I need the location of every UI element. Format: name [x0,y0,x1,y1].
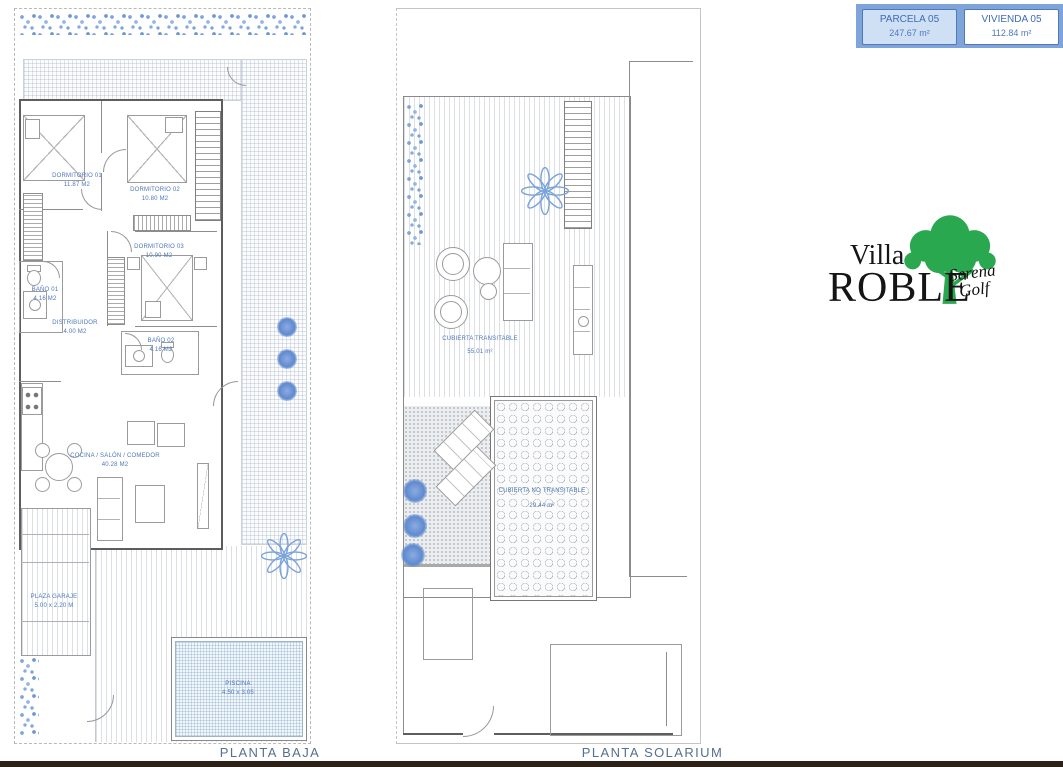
round-chair-inner [440,301,462,323]
wardrobe [133,215,191,231]
sofa-cushion [504,293,530,294]
wall [135,326,217,327]
wall [629,61,630,576]
room-label-dormitorio-03: DORMITORIO 0310.90 M2 [109,243,209,261]
header-parcela-box: PARCELA 05 247.67 m² [862,9,957,45]
room-label-bano-02: BAÑO 024.16 M2 [131,337,191,355]
chair [67,477,82,492]
hedge-row-icon [19,13,307,35]
room-label-dormitorio-02: DORMITORIO 0210.80 M2 [105,186,205,204]
garage [21,508,91,656]
terrace-grid-right [241,59,307,545]
bush-icon [277,349,297,369]
chair [35,443,50,458]
wall [403,733,463,735]
sofa-cushion [98,498,120,499]
bush-icon [277,381,297,401]
round-chair-inner [442,253,464,275]
wall [403,596,404,734]
vivienda-label: VIVIENDA 05 [965,14,1058,25]
tv-unit [197,463,209,529]
room-label-garaje: PLAZA GARAJE5.00 x 2.20 M [19,593,89,611]
wardrobe [107,257,125,325]
armchair [127,421,155,445]
room-label-salon: COCINA / SALÓN / COMEDOR40.28 M2 [55,452,175,470]
bush-icon [403,479,427,503]
pillow [25,119,40,139]
parcela-label: PARCELA 05 [863,14,956,25]
bush-icon [277,317,297,337]
plan-planta-baja: DORMITORIO 0111.87 M2 DORMITORIO 0210.80… [14,8,311,744]
bush-icon [401,543,425,567]
stove [22,387,42,415]
room-label-distribuidor: DISTRIBUIDOR4.00 M2 [25,319,125,337]
wall [135,231,217,232]
palm-tree-icon [521,167,569,215]
room-label-bano-01: BAÑO 014.16 M2 [15,286,75,304]
garage-line [21,534,89,535]
room-label-cubierta-transitable: CUBIERTA TRANSITABLE 55.01 m² [420,335,540,357]
wall [629,576,687,577]
plan-planta-solarium: CUBIERTA TRANSITABLE 55.01 m² CUBIERTA N… [396,8,701,744]
cabinet-line [574,309,590,310]
cabinet-line [574,331,590,332]
sofa [503,243,533,321]
cabinet-line [574,287,590,288]
toilet [27,270,41,286]
coffee-table [135,485,165,523]
caption-planta-solarium: PLANTA SOLARIUM [560,745,745,760]
wall [19,381,61,382]
outdoor-kitchen [573,265,593,355]
sofa-cushion [504,268,530,269]
door-arc [463,706,494,737]
terrace-grid-top [23,59,247,101]
header-vivienda-box: VIVIENDA 05 112.84 m² [964,9,1059,45]
wall [666,652,667,726]
lower-room [423,588,473,660]
sofa [97,477,123,541]
villa-roble-logo: Villa ROBLE Serena Golf [828,200,1063,350]
plant-cluster-icon [19,657,39,735]
lower-room [550,644,682,736]
logo-serena-golf-text: Serena Golf [948,261,998,300]
caption-planta-baja: PLANTA BAJA [200,745,340,760]
sheet-bottom-edge [0,761,1063,767]
pillow [145,301,161,318]
plan-sheet: DORMITORIO 0111.87 M2 DORMITORIO 0210.80… [0,0,1063,767]
sofa-cushion [98,519,120,520]
garage-line [21,621,89,622]
side-table [473,257,501,285]
sink-bowl [578,316,589,327]
wall [629,61,693,62]
bush-icon [403,514,427,538]
side-table [480,283,497,300]
chair [35,477,50,492]
wardrobe [23,193,43,261]
pillow [165,117,183,133]
plant-cluster-icon [406,103,424,245]
garage-line [21,562,89,563]
vivienda-area: 112.84 m² [965,28,1058,38]
palm-tree-icon [261,533,307,579]
room-label-piscina: PISCINA4.50 x 3.05 [178,680,298,698]
parcela-area: 247.67 m² [863,28,956,38]
stairs [195,111,221,221]
room-label-cubierta-no-transitable: CUBIERTA NO TRANSITABLE 29.44 m² [492,487,592,511]
header-strip: PARCELA 05 247.67 m² VIVIENDA 05 112.84 … [856,4,1063,48]
armchair [157,423,185,447]
wall [101,101,102,153]
